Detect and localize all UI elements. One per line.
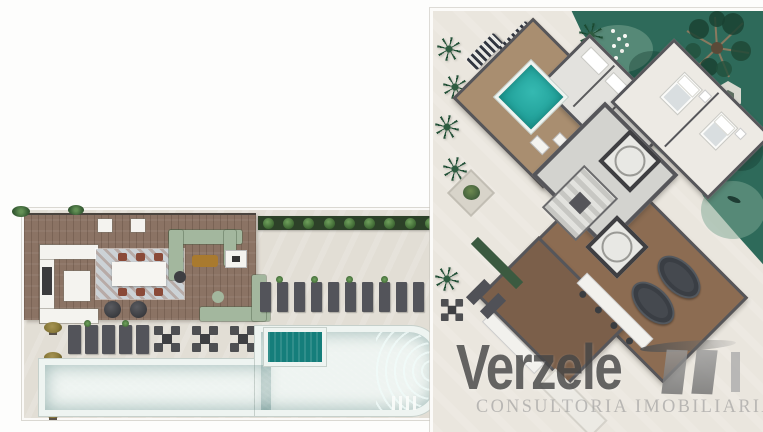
- kitchen-island: [64, 271, 90, 301]
- dining-chair: [136, 288, 145, 296]
- patio-dining-set: [441, 299, 463, 321]
- patio-dining-set: [192, 326, 218, 352]
- kitchen-appliance: [42, 267, 52, 295]
- sun-lounger: [294, 282, 305, 312]
- pool: [45, 365, 271, 410]
- pouf-dark: [174, 271, 186, 283]
- nightstand: [736, 129, 746, 139]
- bath-fixture: [582, 48, 608, 74]
- sun-lounger: [311, 282, 322, 312]
- plant-pot: [44, 322, 62, 335]
- sun-lounger: [328, 282, 339, 312]
- sun-lounger: [119, 325, 132, 354]
- shrub: [344, 218, 355, 229]
- shrub: [283, 218, 294, 229]
- fire-pit: [232, 256, 240, 262]
- sun-lounger: [277, 282, 288, 312]
- stair-landing: [569, 192, 592, 215]
- plant: [381, 276, 388, 283]
- sun-lounger: [345, 282, 356, 312]
- shrub: [384, 218, 395, 229]
- sun-lounger: [379, 282, 390, 312]
- shrub: [303, 218, 314, 229]
- bed: [700, 113, 737, 150]
- pouf: [212, 291, 224, 303]
- plant: [311, 276, 318, 283]
- armchair: [130, 301, 147, 318]
- plant: [276, 276, 283, 283]
- spa-bench: [264, 328, 326, 366]
- terrace-dining-table: [112, 262, 166, 286]
- patio-dining-set: [154, 326, 180, 352]
- dining-chair-row: [118, 288, 164, 296]
- shrub: [364, 218, 375, 229]
- patio-dining-set: [230, 326, 256, 352]
- plant: [84, 320, 91, 327]
- bed: [661, 73, 702, 114]
- dining-chair: [118, 253, 127, 261]
- dining-chair: [154, 253, 163, 261]
- lounger-row: [68, 325, 152, 354]
- palm-icon: [437, 37, 461, 61]
- wood-deck: [24, 213, 256, 320]
- sun-lounger: [136, 325, 149, 354]
- bistro-table: [98, 219, 112, 232]
- palm-icon: [435, 115, 459, 139]
- patio-dining-sets: [154, 326, 262, 354]
- sun-lounger: [102, 325, 115, 354]
- pool-ladder: [392, 396, 418, 410]
- plant: [346, 276, 353, 283]
- lounger-row: [260, 282, 432, 312]
- shrub: [405, 218, 416, 229]
- sun-lounger: [68, 325, 81, 354]
- deck-lounger: [531, 136, 549, 154]
- dining-chair: [136, 253, 145, 261]
- sun-lounger: [260, 282, 271, 312]
- bistro-table: [131, 219, 145, 232]
- penthouse-wing: [430, 8, 763, 432]
- plant: [122, 320, 129, 327]
- terrace-wing: [22, 208, 444, 420]
- tree-canopy: [68, 205, 84, 215]
- palm-icon: [435, 267, 459, 291]
- armchair: [104, 301, 121, 318]
- tree-canopy: [12, 206, 30, 217]
- sun-lounger: [362, 282, 373, 312]
- sun-lounger: [413, 282, 424, 312]
- kitchen-counter: [40, 245, 98, 259]
- plant: [463, 185, 480, 200]
- sun-lounger: [85, 325, 98, 354]
- shrub: [263, 218, 274, 229]
- shrub: [324, 218, 335, 229]
- dining-chair: [154, 288, 163, 296]
- sun-lounger: [396, 282, 407, 312]
- wall: [573, 65, 615, 107]
- coffee-table: [192, 255, 218, 267]
- floor-plan-render: Verzele CONSULTORIA IMOBILIARIA: [0, 0, 763, 432]
- dining-chair-row: [118, 253, 164, 261]
- dining-chair: [118, 288, 127, 296]
